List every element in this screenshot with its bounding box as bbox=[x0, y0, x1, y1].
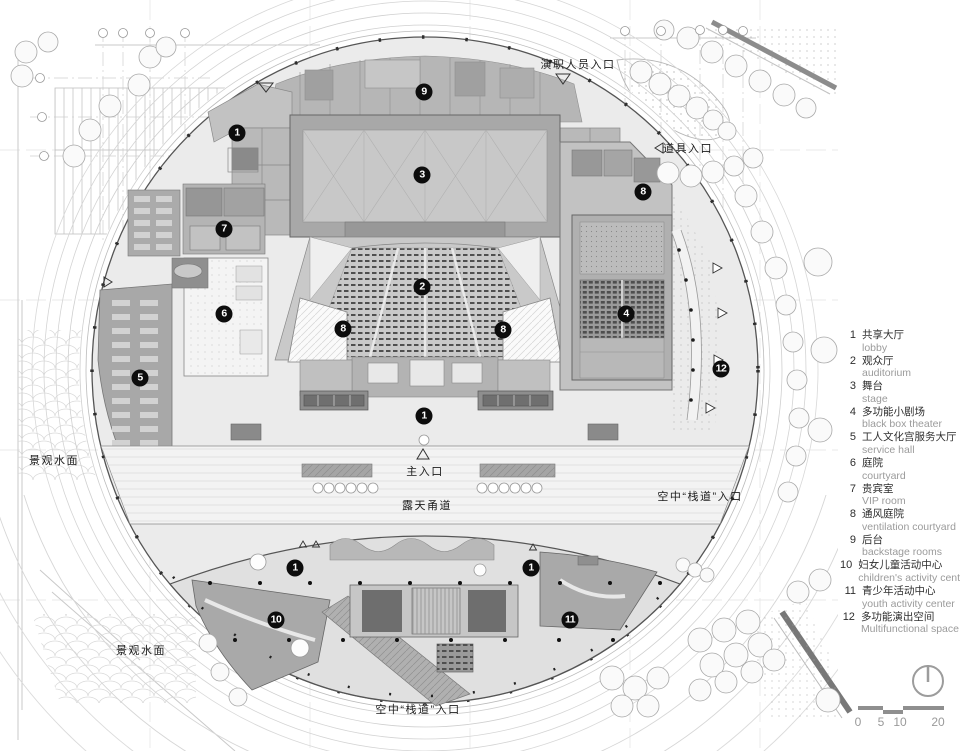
legend-item-number: 1 bbox=[840, 329, 856, 354]
legend-item-number: 5 bbox=[840, 431, 856, 456]
legend-item-zh: 工人文化宫服务大厅 bbox=[862, 431, 957, 444]
plan-marker-8-right: 8 bbox=[495, 322, 512, 339]
plan-marker-1-bottomleft: 1 bbox=[287, 560, 304, 577]
label-skywalk-entrance-right: 空中“栈道”入口 bbox=[657, 488, 742, 504]
scale-label-10: 10 bbox=[893, 715, 906, 729]
legend-item-zh: 青少年活动中心 bbox=[862, 585, 955, 598]
label-performer-entrance: 演职人员入口 bbox=[541, 56, 616, 72]
legend-item-en: children's activity center bbox=[858, 572, 960, 584]
scale-label-5: 5 bbox=[878, 715, 885, 729]
legend-item: 8 通风庭院 ventilation courtyard bbox=[840, 508, 959, 533]
legend: 1 共享大厅 lobby 2 观众厅 auditorium 3 舞台 stage… bbox=[840, 329, 959, 636]
label-open-air-path: 露天甬道 bbox=[402, 497, 452, 513]
scale-label-20: 20 bbox=[931, 715, 944, 729]
plan-marker-9: 9 bbox=[416, 84, 433, 101]
legend-item-zh: 贵宾室 bbox=[862, 483, 906, 496]
legend-item: 9 后台 backstage rooms bbox=[840, 534, 959, 559]
legend-item: 5 工人文化宫服务大厅 service hall bbox=[840, 431, 959, 456]
legend-item-en: courtyard bbox=[862, 470, 906, 482]
legend-item-zh: 多功能演出空间 bbox=[861, 611, 959, 624]
legend-item: 6 庭院 courtyard bbox=[840, 457, 959, 482]
plan-marker-10: 10 bbox=[268, 612, 285, 629]
plan-marker-2: 2 bbox=[414, 279, 431, 296]
legend-item: 11 青少年活动中心 youth activity center bbox=[840, 585, 959, 610]
legend-item-number: 3 bbox=[840, 380, 856, 405]
plan-marker-4: 4 bbox=[618, 306, 635, 323]
legend-item-zh: 庭院 bbox=[862, 457, 906, 470]
legend-item: 3 舞台 stage bbox=[840, 380, 959, 405]
legend-item-zh: 多功能小剧场 bbox=[862, 406, 942, 419]
legend-item: 2 观众厅 auditorium bbox=[840, 355, 959, 380]
plan-marker-3: 3 bbox=[414, 167, 431, 184]
scale-bar bbox=[858, 706, 944, 714]
label-water-left: 景观水面 bbox=[29, 452, 79, 468]
legend-item-en: lobby bbox=[862, 342, 904, 354]
legend-item-zh: 后台 bbox=[862, 534, 942, 547]
legend-item: 7 贵宾室 VIP room bbox=[840, 483, 959, 508]
vip-rooms-7 bbox=[183, 184, 265, 254]
legend-item-zh: 舞台 bbox=[862, 380, 888, 393]
legend-item-en: youth activity center bbox=[862, 598, 955, 610]
legend-item-zh: 妇女儿童活动中心 bbox=[858, 559, 960, 572]
label-main-entrance: 主入口 bbox=[406, 463, 444, 479]
legend-item-number: 2 bbox=[840, 355, 856, 380]
plan-marker-12: 12 bbox=[713, 361, 730, 378]
legend-item: 10 妇女儿童活动中心 children's activity center bbox=[840, 559, 959, 584]
legend-item-number: 6 bbox=[840, 457, 856, 482]
site-plan-canvas: 演职人员入口 道具入口 主入口 露天甬道 空中“栈道”入口 空中“栈道”入口 景… bbox=[0, 0, 960, 751]
legend-item: 4 多功能小剧场 black box theater bbox=[840, 406, 959, 431]
black-box-theater-4 bbox=[560, 142, 672, 390]
legend-item-en: VIP room bbox=[862, 495, 906, 507]
legend-item-number: 10 bbox=[840, 559, 852, 584]
legend-item-number: 12 bbox=[840, 611, 855, 636]
plan-marker-1-topleft: 1 bbox=[229, 125, 246, 142]
plan-marker-11: 11 bbox=[562, 612, 579, 629]
legend-item-number: 4 bbox=[840, 406, 856, 431]
label-props-entrance: 道具入口 bbox=[663, 140, 713, 156]
legend-item-number: 8 bbox=[840, 508, 856, 533]
label-water-bottom-left: 景观水面 bbox=[116, 642, 166, 658]
legend-item: 1 共享大厅 lobby bbox=[840, 329, 959, 354]
legend-item-zh: 共享大厅 bbox=[862, 329, 904, 342]
north-arrow-icon bbox=[913, 665, 943, 696]
plan-marker-8-topright: 8 bbox=[635, 184, 652, 201]
scale-label-0: 0 bbox=[855, 715, 862, 729]
legend-item-en: Multifunctional space bbox=[861, 623, 959, 635]
label-skywalk-entrance-bottom: 空中“栈道”入口 bbox=[375, 701, 460, 717]
legend-item-en: ventilation courtyard bbox=[862, 521, 956, 533]
plan-marker-1-center: 1 bbox=[416, 408, 433, 425]
legend-item-number: 9 bbox=[840, 534, 856, 559]
legend-item-number: 11 bbox=[840, 585, 856, 610]
legend-item-en: backstage rooms bbox=[862, 546, 942, 558]
plan-marker-1-bottomright: 1 bbox=[523, 560, 540, 577]
legend-item-en: stage bbox=[862, 393, 888, 405]
legend-item-number: 7 bbox=[840, 483, 856, 508]
plan-marker-8-left: 8 bbox=[335, 321, 352, 338]
legend-item-en: service hall bbox=[862, 444, 957, 456]
plan-marker-5: 5 bbox=[132, 370, 149, 387]
legend-item-en: auditorium bbox=[862, 367, 911, 379]
plan-marker-7: 7 bbox=[216, 221, 233, 238]
legend-item-en: black box theater bbox=[862, 418, 942, 430]
plan-marker-6: 6 bbox=[216, 306, 233, 323]
legend-item-zh: 观众厅 bbox=[862, 355, 911, 368]
legend-item: 12 多功能演出空间 Multifunctional space bbox=[840, 611, 959, 636]
water-bottom-left bbox=[32, 614, 196, 703]
legend-item-zh: 通风庭院 bbox=[862, 508, 956, 521]
